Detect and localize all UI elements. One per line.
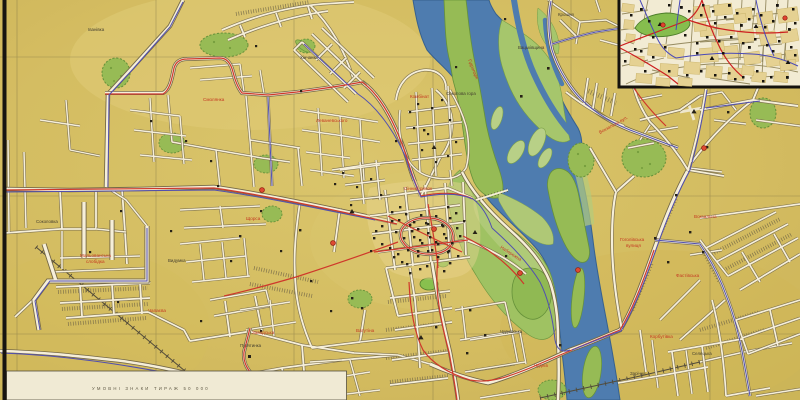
svg-text:УМОВНІ ЗНАКИ ТИРАЖ 50 000: УМОВНІ ЗНАКИ ТИРАЖ 50 000 xyxy=(92,386,210,391)
